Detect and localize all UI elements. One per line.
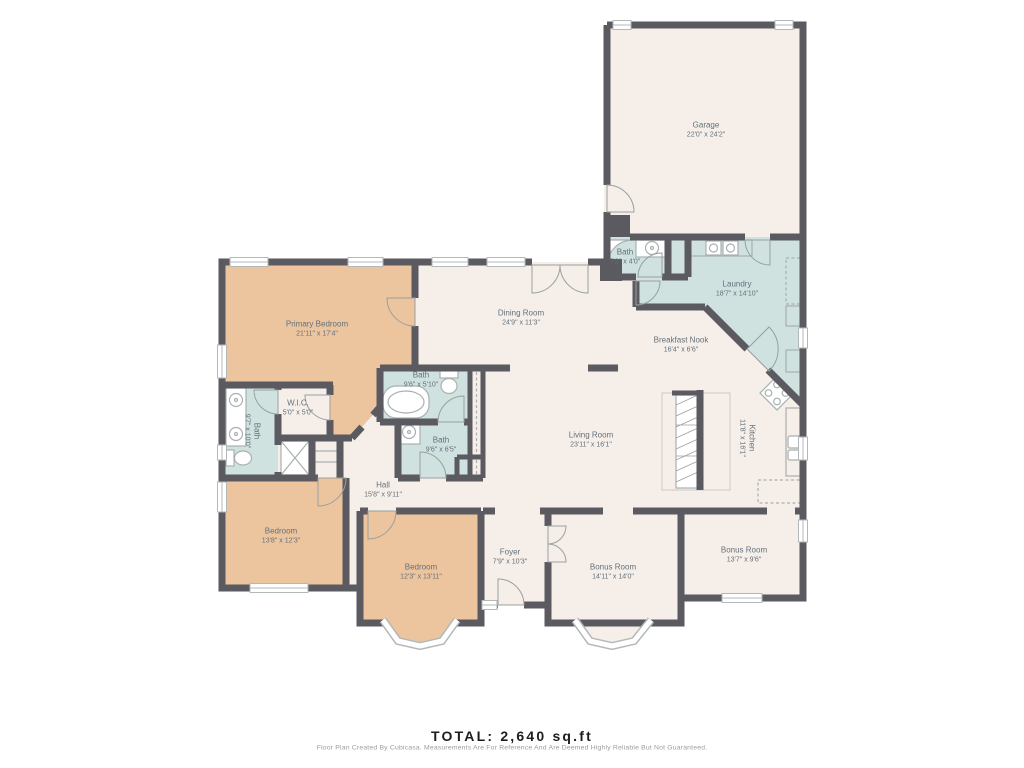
- toilet-icon: [235, 451, 252, 465]
- sink-icon: [230, 428, 243, 441]
- room-label-bath-top: Bath7'2" x 4'0": [610, 247, 641, 266]
- room-label-bedroom-2: Bedroom12'3" x 13'11": [400, 562, 442, 581]
- dryer-icon: [723, 241, 738, 255]
- floorplan-page: Garage22'0" x 24'2" Bath7'2" x 4'0" Laun…: [0, 0, 1024, 768]
- room-label-garage: Garage22'0" x 24'2": [687, 120, 725, 139]
- room-label-living-room: Living Room23'11" x 16'1": [569, 430, 613, 449]
- toilet-icon: [441, 379, 457, 394]
- washer-icon: [706, 241, 721, 255]
- disclaimer-text: Floor Plan Created By Cubicasa. Measurem…: [317, 745, 708, 752]
- room-label-primary-bedroom: Primary Bedroom21'11" x 17'4": [286, 319, 348, 338]
- sink-icon: [403, 426, 416, 439]
- sink-icon: [230, 394, 243, 407]
- room-label-laundry: Laundry18'7" x 14'10": [716, 279, 758, 298]
- wall-stub: [604, 215, 630, 237]
- sink-icon: [646, 242, 659, 255]
- floorplan-drawing: [0, 0, 1024, 768]
- room-label-foyer: Foyer7'9" x 10'3": [493, 547, 528, 566]
- toilet-tank-icon: [226, 450, 234, 466]
- room-label-wic: W.I.C.5'0" x 5'0": [283, 398, 314, 417]
- room-label-bonus-room-1: Bonus Room14'11" x 14'0": [590, 562, 636, 581]
- room-label-hall: Hall15'8" x 9'11": [364, 480, 402, 499]
- room-label-bath-1: Bath9'6" x 5'10": [404, 370, 439, 389]
- room-label-dining-room: Dining Room24'9" x 11'3": [498, 308, 544, 327]
- room-label-breakfast-nook: Breakfast Nook16'4" x 6'6": [654, 335, 709, 354]
- room-label-bedroom-1: Bedroom13'8" x 12'3": [262, 526, 300, 545]
- room-label-bath-2: Bath9'6" x 6'5": [426, 435, 457, 454]
- room-label-primary-bath: Bath9'7" x 10'0": [242, 414, 261, 449]
- fireplace-icon: [676, 395, 698, 488]
- total-area-text: TOTAL: 2,640 sq.ft: [431, 728, 593, 744]
- room-label-bonus-room-2: Bonus Room13'7" x 9'6": [721, 545, 767, 564]
- room-label-kitchen: Kitchen11'8" x 16'1": [737, 419, 756, 457]
